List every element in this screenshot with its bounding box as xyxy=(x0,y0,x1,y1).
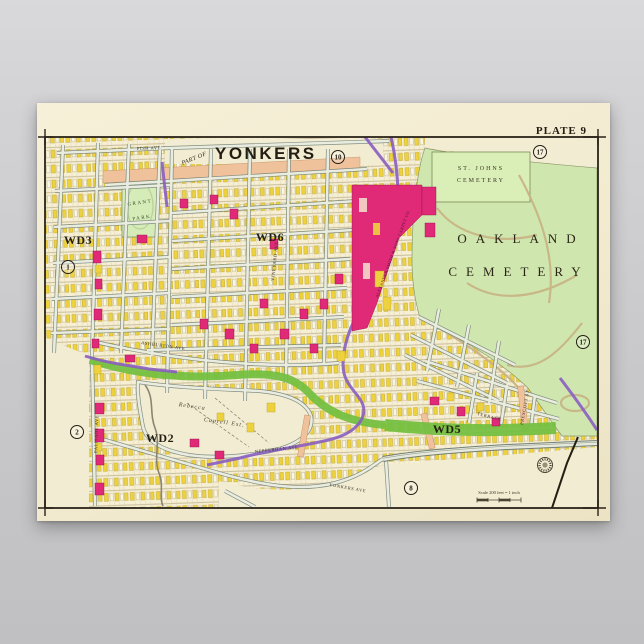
map-poster: PART OF YONKERS ST. JOHNS CEMETERY OAKLA… xyxy=(37,103,610,521)
ward2-label: WD2 xyxy=(146,431,174,445)
street-fish: FISH AVE xyxy=(137,145,161,151)
ward6-label: WD6 xyxy=(256,230,284,244)
st-johns-label-2: CEMETERY xyxy=(457,178,505,184)
ref-1: 1 xyxy=(62,261,75,274)
svg-text:2: 2 xyxy=(75,429,79,437)
ref-8: 8 xyxy=(405,482,418,495)
svg-text:17: 17 xyxy=(580,339,588,347)
scale-note: Scale 200 feet = 1 inch xyxy=(478,490,520,495)
ref-17-mid: 17 xyxy=(577,336,590,349)
oakland-label-2: CEMETERY xyxy=(448,264,589,279)
st-johns-cemetery-area xyxy=(432,152,530,202)
svg-text:17: 17 xyxy=(537,149,545,157)
map-content: PART OF YONKERS ST. JOHNS CEMETERY OAKLA… xyxy=(45,137,598,508)
oakland-label-1: OAKLAND xyxy=(457,231,584,246)
studio-background: PART OF YONKERS ST. JOHNS CEMETERY OAKLA… xyxy=(0,0,644,644)
ward3-label: WD3 xyxy=(64,233,92,247)
ward5-green-strip xyxy=(385,425,556,430)
svg-text:10: 10 xyxy=(335,154,343,162)
svg-text:8: 8 xyxy=(409,485,413,493)
map-svg: PART OF YONKERS ST. JOHNS CEMETERY OAKLA… xyxy=(37,103,610,521)
st-johns-label-1: ST. JOHNS xyxy=(458,166,504,172)
ref-2: 2 xyxy=(71,426,84,439)
ward5-label: WD5 xyxy=(433,422,461,436)
svg-text:1: 1 xyxy=(66,264,70,272)
ref-10: 10 xyxy=(332,151,345,164)
map-title: YONKERS xyxy=(215,144,317,163)
plate-label: PLATE 9 xyxy=(536,125,587,137)
ref-17-top: 17 xyxy=(534,146,547,159)
